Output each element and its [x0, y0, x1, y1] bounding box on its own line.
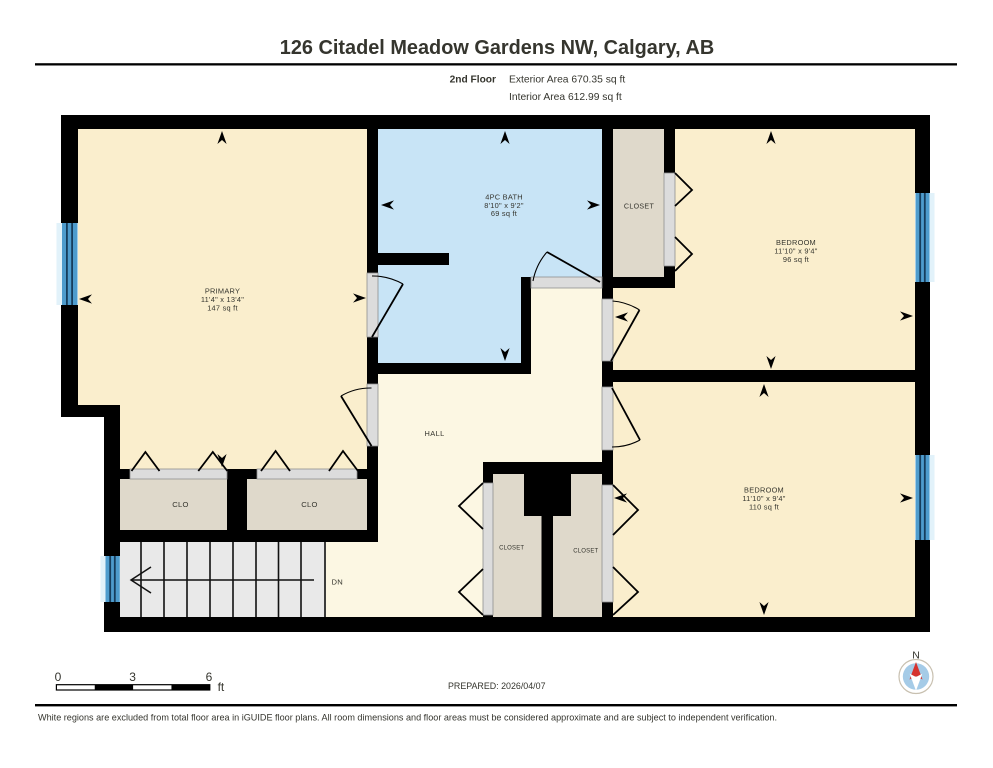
svg-text:110 sq ft: 110 sq ft — [749, 503, 779, 512]
svg-text:2nd Floor: 2nd Floor — [450, 74, 496, 85]
svg-text:CLOSET: CLOSET — [573, 549, 598, 555]
svg-text:CLO: CLO — [172, 500, 189, 509]
svg-text:0: 0 — [55, 670, 62, 684]
svg-text:CLOSET: CLOSET — [499, 546, 524, 552]
svg-text:HALL: HALL — [425, 429, 445, 438]
svg-text:CLO: CLO — [301, 500, 318, 509]
svg-text:96 sq ft: 96 sq ft — [783, 255, 809, 264]
svg-text:ft: ft — [218, 680, 225, 694]
svg-text:PREPARED: 2026/04/07: PREPARED: 2026/04/07 — [448, 681, 546, 691]
svg-text:Interior Area 612.99 sq ft: Interior Area 612.99 sq ft — [509, 92, 622, 103]
svg-text:69 sq ft: 69 sq ft — [491, 209, 517, 218]
svg-text:Exterior Area 670.35 sq ft: Exterior Area 670.35 sq ft — [509, 74, 625, 85]
svg-text:White regions are excluded fro: White regions are excluded from total fl… — [38, 713, 777, 723]
svg-text:126 Citadel Meadow Gardens NW,: 126 Citadel Meadow Gardens NW, Calgary, … — [280, 37, 714, 59]
svg-text:3: 3 — [129, 670, 136, 684]
svg-text:DN: DN — [332, 578, 344, 587]
svg-text:CLOSET: CLOSET — [624, 203, 655, 211]
svg-text:6: 6 — [206, 670, 213, 684]
svg-text:147 sq ft: 147 sq ft — [207, 303, 238, 312]
